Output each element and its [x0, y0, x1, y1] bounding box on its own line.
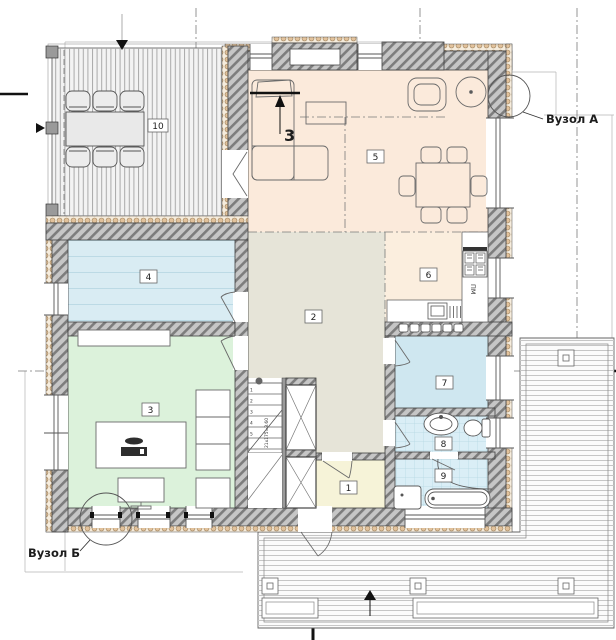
stair-formula: 21х175=3.60 — [264, 418, 270, 448]
desk — [96, 422, 186, 468]
window — [92, 506, 120, 528]
window — [486, 258, 514, 298]
window — [486, 118, 514, 208]
room-label-4: 4 — [140, 270, 157, 283]
floor-plan-drawing: 3 ПМ — [0, 0, 616, 640]
room-label-9: 9 — [435, 469, 452, 482]
room-label-7: 7 — [436, 376, 453, 389]
stair-step-number: 1 — [250, 388, 253, 394]
window — [486, 356, 514, 400]
shaft — [286, 457, 316, 508]
cabinet — [78, 330, 170, 346]
stair-newel — [256, 378, 263, 385]
shelving — [196, 390, 230, 508]
svg-text:10: 10 — [152, 122, 164, 132]
svg-text:4: 4 — [146, 273, 152, 283]
svg-text:7: 7 — [442, 379, 448, 389]
svg-text:9: 9 — [441, 472, 447, 482]
svg-text:2: 2 — [311, 313, 317, 323]
terrace-table — [66, 112, 144, 146]
svg-text:1: 1 — [346, 484, 352, 494]
section-number: 3 — [284, 126, 295, 145]
stair-step-number: 2 — [250, 399, 253, 405]
terrace-arrow-left — [36, 123, 45, 133]
deck-steps — [262, 598, 598, 618]
shaft — [286, 385, 316, 450]
room-label-2: 2 — [305, 310, 322, 323]
terrace — [36, 14, 226, 220]
door-terrace — [222, 150, 248, 198]
room-label-1: 1 — [340, 481, 357, 494]
stairs-block: 1 2 3 4 5 21х175=3.60 — [248, 378, 316, 509]
terrace-table-set — [66, 91, 144, 167]
room-label-8: 8 — [435, 437, 452, 450]
room-label-5: 5 — [367, 150, 384, 163]
node-b-label: Вузол Б — [28, 546, 80, 560]
dishwasher-label: ПМ — [469, 284, 477, 295]
window — [44, 283, 68, 315]
window — [358, 44, 382, 70]
floor-plan-canvas: 3 ПМ — [0, 0, 616, 640]
window — [44, 395, 68, 470]
window — [186, 506, 212, 528]
bathtub — [425, 489, 490, 508]
room-label-3: 3 — [142, 403, 159, 416]
room-label-6: 6 — [420, 268, 437, 281]
node-a-label: Вузол А — [546, 112, 598, 126]
chimney-niche — [290, 49, 340, 65]
sink — [424, 413, 458, 435]
room7-floor — [395, 336, 488, 408]
svg-text:3: 3 — [148, 406, 154, 416]
toilet — [464, 419, 490, 437]
stair-step-number: 4 — [250, 421, 253, 427]
shower — [394, 486, 421, 509]
svg-text:6: 6 — [426, 271, 432, 281]
stair-step-number: 5 — [250, 432, 253, 438]
terrace-arrow-top — [116, 14, 128, 50]
window — [250, 44, 272, 70]
kitchen-counter — [387, 300, 462, 322]
stair-step-number: 3 — [250, 410, 253, 416]
stove — [463, 247, 487, 277]
room-label-10: 10 — [148, 119, 168, 132]
svg-text:8: 8 — [441, 440, 447, 450]
svg-text:5: 5 — [373, 153, 379, 163]
